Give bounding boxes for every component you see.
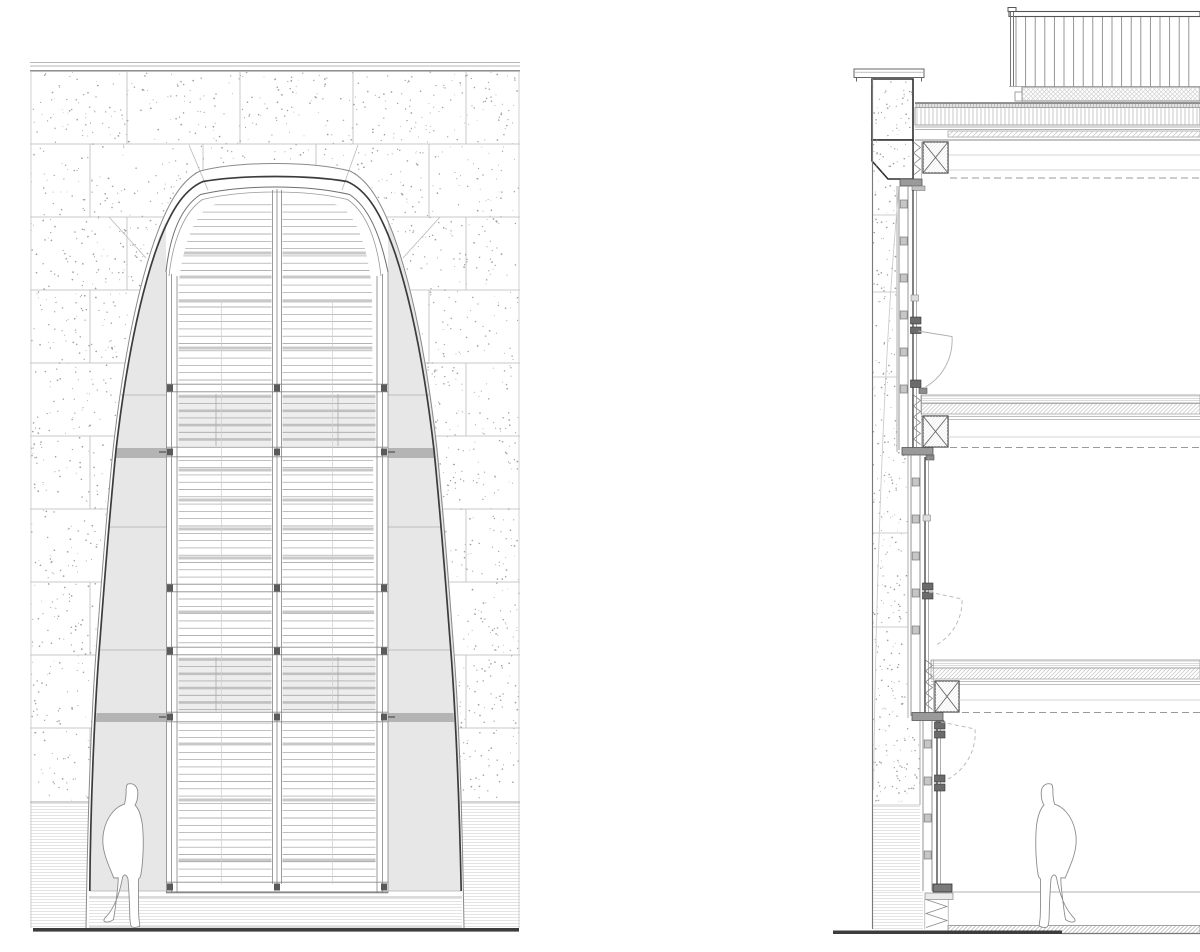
spandrel-band-left-lower xyxy=(96,713,166,722)
wall-base-hatch xyxy=(873,807,920,891)
window-fittings-lower xyxy=(935,722,946,791)
floor1-sill xyxy=(902,448,933,456)
vent-flap-arc-middle xyxy=(929,592,962,645)
parapet-sill-trim xyxy=(912,186,925,191)
facade-ladder-lower xyxy=(923,721,932,891)
roof-railing-balusters xyxy=(1016,17,1189,87)
facade-ladder-middle xyxy=(911,455,920,716)
facade-ladder-upper xyxy=(899,186,908,450)
vent-flap-arc-upper xyxy=(918,331,952,387)
terrace-step xyxy=(1015,92,1022,101)
wall-curvature-line xyxy=(874,188,900,790)
roof-railing-post xyxy=(1011,12,1014,87)
terrace-screed xyxy=(1008,87,1200,101)
floor1-board-lines xyxy=(921,417,1200,420)
plinth-insulation xyxy=(925,900,948,930)
floor2-board-lines xyxy=(931,682,1200,685)
vent-flap-arc-lower xyxy=(941,722,975,779)
coping-stone xyxy=(854,69,924,78)
spandrel-band-left-upper xyxy=(116,448,166,458)
window-fittings-middle xyxy=(923,515,934,599)
roof-decking xyxy=(915,108,1200,126)
roof-board-lines xyxy=(915,127,1200,130)
floor2-insulation-layer xyxy=(920,668,1200,679)
spandrel-panel-right xyxy=(388,222,461,891)
roof-insulation-band xyxy=(942,131,1200,137)
floor1-screed xyxy=(921,395,1200,403)
ground-line-heavy xyxy=(833,931,1062,935)
floor1-sill-fitting xyxy=(926,455,934,460)
roof-railing-top-rail xyxy=(1009,12,1200,17)
drawing-canvas xyxy=(0,0,1200,952)
roof-railing-post-cap xyxy=(1008,8,1016,12)
plinth-sill xyxy=(925,893,953,900)
window-bottom-frame xyxy=(933,884,952,892)
wall-plinth-hatch xyxy=(873,893,923,929)
spandrel-band-right-lower xyxy=(388,713,454,722)
parapet-block-upper xyxy=(872,79,913,140)
floor1-edge-insulation xyxy=(912,395,921,447)
elevation-drawing xyxy=(30,63,520,932)
section-drawing xyxy=(833,8,1200,935)
floor1-edge-blocking xyxy=(892,416,977,447)
floor1-insulation-layer xyxy=(911,404,1200,415)
person-figure-section xyxy=(1036,784,1076,928)
floor2-sill xyxy=(912,713,943,721)
ground-line xyxy=(33,928,519,932)
parapet-sill xyxy=(900,179,922,186)
floor2-edge-blocking xyxy=(904,681,989,712)
parapet-block-lower xyxy=(871,139,913,179)
architectural-drawing-svg xyxy=(0,0,1200,952)
floor2-screed xyxy=(931,660,1200,668)
ceiling-lines-roof xyxy=(948,155,1200,170)
cornice-lines xyxy=(30,63,520,67)
